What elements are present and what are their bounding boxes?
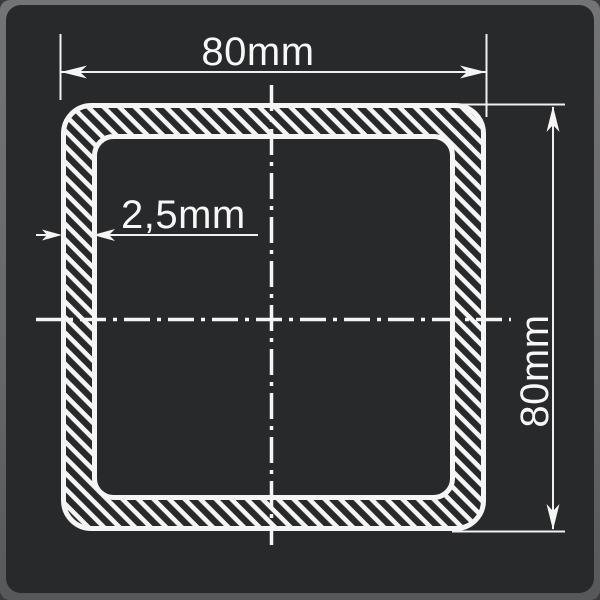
height-dimension-label: 80mm: [513, 314, 557, 427]
drawing-frame: 80mm 80mm 2,5mm: [0, 0, 600, 600]
cross-section-diagram: 80mm 80mm 2,5mm: [0, 0, 600, 600]
wall-thickness-label: 2,5mm: [121, 193, 246, 237]
width-dimension-label: 80mm: [201, 30, 314, 74]
tube-inner-wall: [95, 137, 453, 498]
